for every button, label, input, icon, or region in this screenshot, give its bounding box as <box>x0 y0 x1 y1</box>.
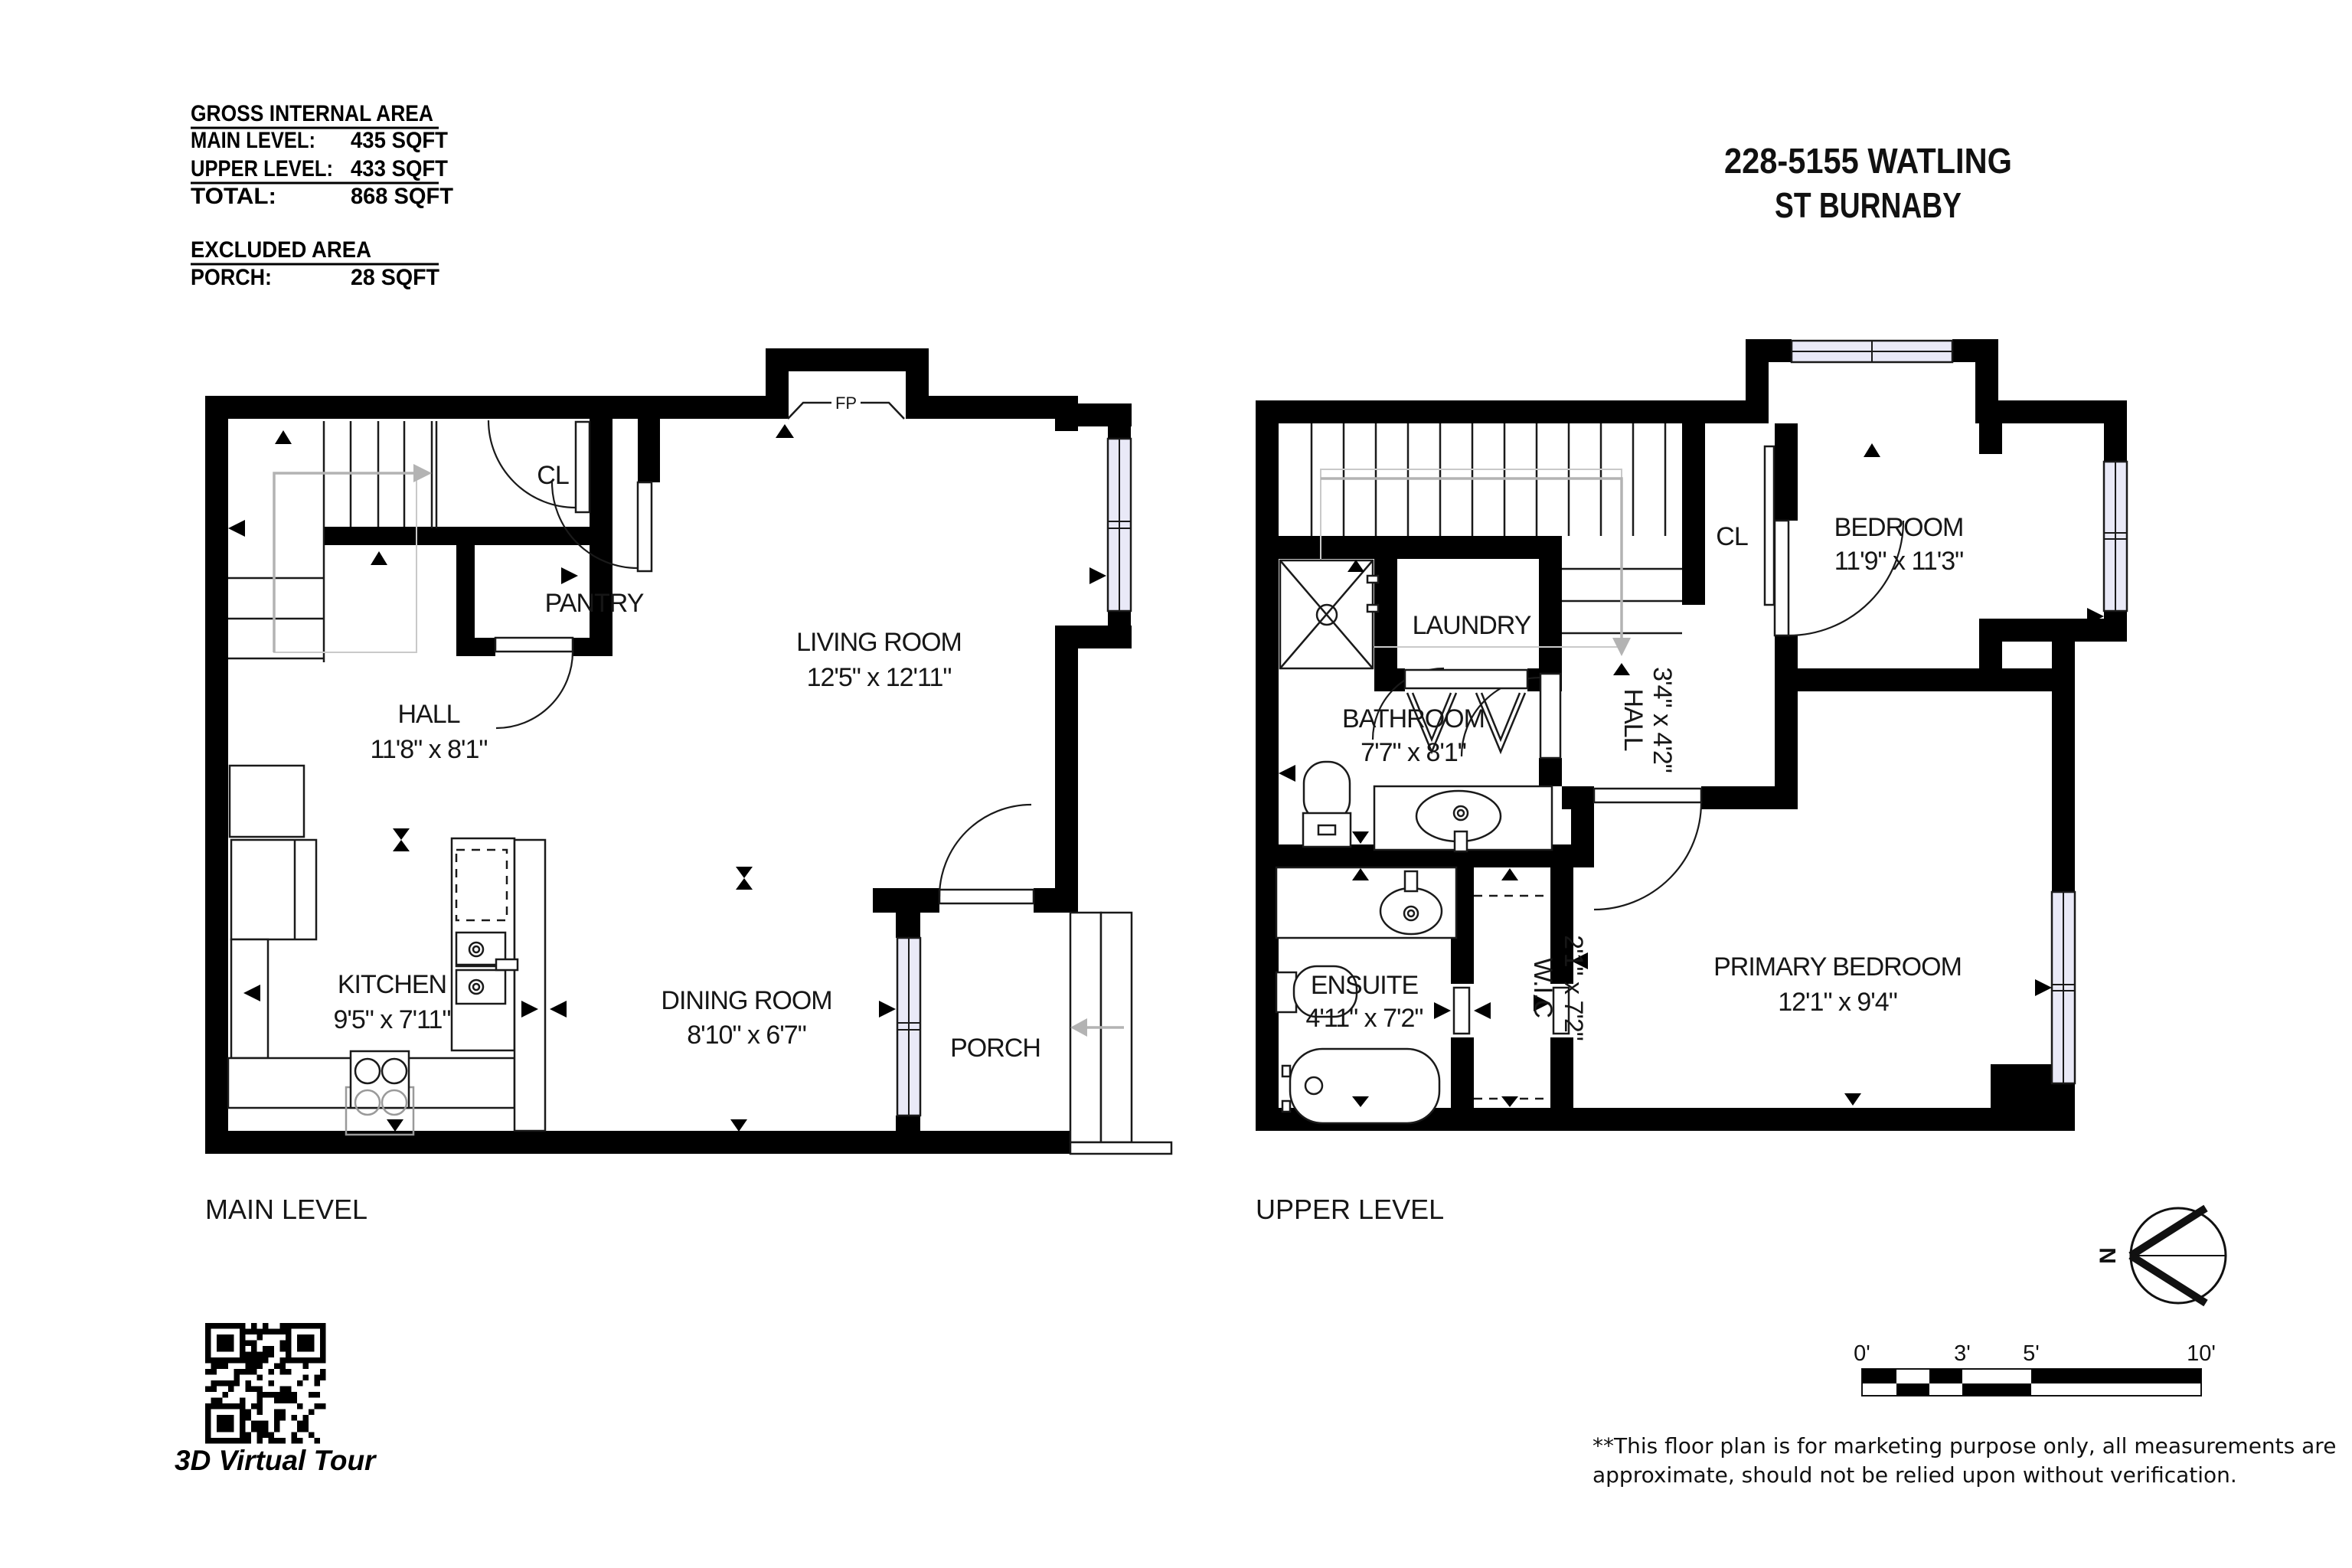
hall-label: HALL <box>397 700 459 729</box>
primary-bedroom-dims: 12'1" x 9'4" <box>1778 988 1897 1017</box>
kitchen-dims: 9'5" x 7'11" <box>333 1005 450 1034</box>
qr-code <box>205 1323 326 1444</box>
dining-porch-window <box>897 938 920 1116</box>
bedroom-bump-window <box>1792 341 1952 362</box>
bathroom-label: BATHROOM <box>1342 704 1485 733</box>
gross-internal-area-title: GROSS INTERNAL AREA <box>191 101 433 126</box>
counter-appliance <box>230 766 304 837</box>
laundry-label: LAUNDRY <box>1413 611 1531 640</box>
address-title: 228-5155 WATLING ST BURNABY <box>1724 141 2012 225</box>
bedroom-side-window <box>2104 462 2127 611</box>
stair-direction-arrow <box>413 464 432 482</box>
ensuite-label: ENSUITE <box>1311 971 1419 1000</box>
living-room-label: LIVING ROOM <box>796 628 962 657</box>
living-room-window <box>1108 439 1131 611</box>
pantry-door <box>495 638 573 728</box>
faucet <box>1455 831 1467 851</box>
address-line-1: 228-5155 WATLING <box>1724 141 2012 181</box>
closet-label: CL <box>537 461 569 490</box>
floor-plan-page: GROSS INTERNAL AREA MAIN LEVEL: 435 SQFT… <box>0 0 2352 1568</box>
total-value: 868 SQFT <box>351 184 453 209</box>
kitchen-fixtures <box>228 766 545 1135</box>
stair-direction-line <box>274 473 413 652</box>
porch-room-label: PORCH <box>950 1034 1040 1063</box>
upper-closet-label: CL <box>1716 522 1748 551</box>
hall-dims: 11'8" x 8'1" <box>370 735 487 764</box>
kitchen-left-counter <box>231 939 268 1058</box>
upper-level-plan-name: UPPER LEVEL <box>1256 1194 1444 1225</box>
closet-sliding-door <box>1765 446 1774 605</box>
dining-room-label: DINING ROOM <box>661 986 831 1015</box>
upper-level-plan: CL LAUNDRY BEDROOM 11'9" x 11'3" BATHROO… <box>1256 339 2127 1225</box>
upper-hall-dims: 3'4" x 4'2" <box>1648 667 1677 773</box>
address-line-2: ST BURNABY <box>1775 185 1962 225</box>
shower-handle <box>1367 605 1378 612</box>
primary-bedroom-label: PRIMARY BEDROOM <box>1713 952 1962 982</box>
pantry-room-label: PANTRY <box>545 589 644 618</box>
ensuite-bathtub <box>1282 1049 1439 1123</box>
scale-bar: 0' 3' 5' 10' <box>1854 1341 2216 1396</box>
bedroom-dims: 11'9" x 11'3" <box>1834 547 1963 576</box>
living-room-dims: 12'5" x 12'11" <box>807 663 952 692</box>
bedroom-label: BEDROOM <box>1834 513 1964 542</box>
porch-entry-door <box>939 805 1034 903</box>
faucet <box>1405 871 1417 891</box>
porch-label: PORCH: <box>191 265 272 290</box>
dining-room-dims: 8'10" x 6'7" <box>687 1021 806 1050</box>
north-label: N <box>2096 1247 2121 1264</box>
primary-bedroom-door <box>1594 789 1701 910</box>
fireplace-icon: FP <box>788 394 904 419</box>
floor-plan-canvas: GROSS INTERNAL AREA MAIN LEVEL: 435 SQFT… <box>0 0 2352 1568</box>
area-summary: GROSS INTERNAL AREA MAIN LEVEL: 435 SQFT… <box>191 101 453 290</box>
upper-hall-label-group: HALL 3'4" x 4'2" <box>1619 667 1677 773</box>
bathroom-vanity <box>1374 786 1552 851</box>
main-interior-walls <box>324 419 660 656</box>
total-label: TOTAL: <box>191 184 276 209</box>
upper-hall-label: HALL <box>1619 688 1648 750</box>
counter-appliance <box>231 840 316 939</box>
disclaimer-line-2: approximate, should not be relied upon w… <box>1592 1462 2237 1488</box>
bathroom-dims: 7'7" x 8'1" <box>1361 738 1466 767</box>
scale-5: 5' <box>2023 1341 2040 1366</box>
primary-bedroom-window <box>2052 892 2075 1083</box>
excluded-area-title: EXCLUDED AREA <box>191 237 371 263</box>
scale-10: 10' <box>2187 1341 2216 1366</box>
main-level-plan-name: MAIN LEVEL <box>205 1194 367 1225</box>
kitchen-label: KITCHEN <box>338 970 446 999</box>
scale-3: 3' <box>1954 1341 1971 1366</box>
faucet <box>496 959 518 970</box>
main-level-value: 435 SQFT <box>351 128 448 153</box>
upper-level-value: 433 SQFT <box>351 156 448 181</box>
bathroom-toilet <box>1303 762 1351 847</box>
qr-caption: 3D Virtual Tour <box>175 1445 377 1476</box>
compass-icon: N <box>2096 1208 2226 1303</box>
wic-label: W.I.C <box>1528 958 1557 1018</box>
stove <box>346 1051 413 1135</box>
disclaimer: **This floor plan is for marketing purpo… <box>1592 1433 2336 1488</box>
main-level-label: MAIN LEVEL: <box>191 128 315 153</box>
wic-dims: 2'1" x 7'2" <box>1559 935 1588 1040</box>
fireplace-label: FP <box>835 394 857 413</box>
disclaimer-line-1: **This floor plan is for marketing purpo… <box>1592 1433 2336 1459</box>
main-level-plan: FP CL <box>205 348 1171 1225</box>
kitchen-peninsula-panel <box>514 840 545 1131</box>
porch-value: 28 SQFT <box>351 265 439 290</box>
upper-level-label: UPPER LEVEL: <box>191 156 333 181</box>
shower-handle <box>1367 576 1378 583</box>
ensuite-dims: 4'11" x 7'2" <box>1305 1004 1423 1033</box>
porch-steps <box>1070 913 1171 1154</box>
scale-0: 0' <box>1854 1341 1870 1366</box>
